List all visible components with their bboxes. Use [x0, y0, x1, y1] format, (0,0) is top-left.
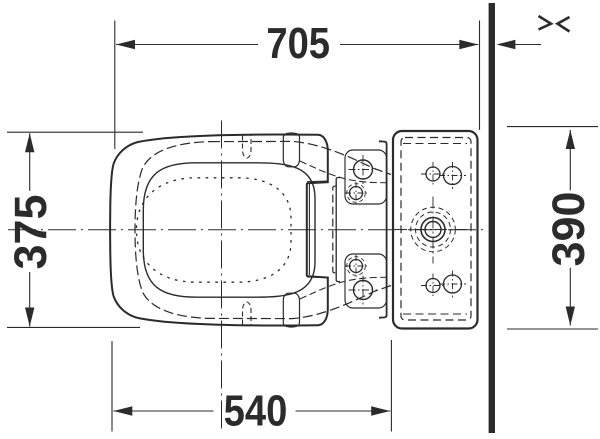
- svg-text:375: 375: [5, 194, 56, 269]
- svg-text:540: 540: [224, 386, 288, 435]
- svg-text:390: 390: [543, 191, 594, 266]
- svg-text:705: 705: [266, 19, 330, 68]
